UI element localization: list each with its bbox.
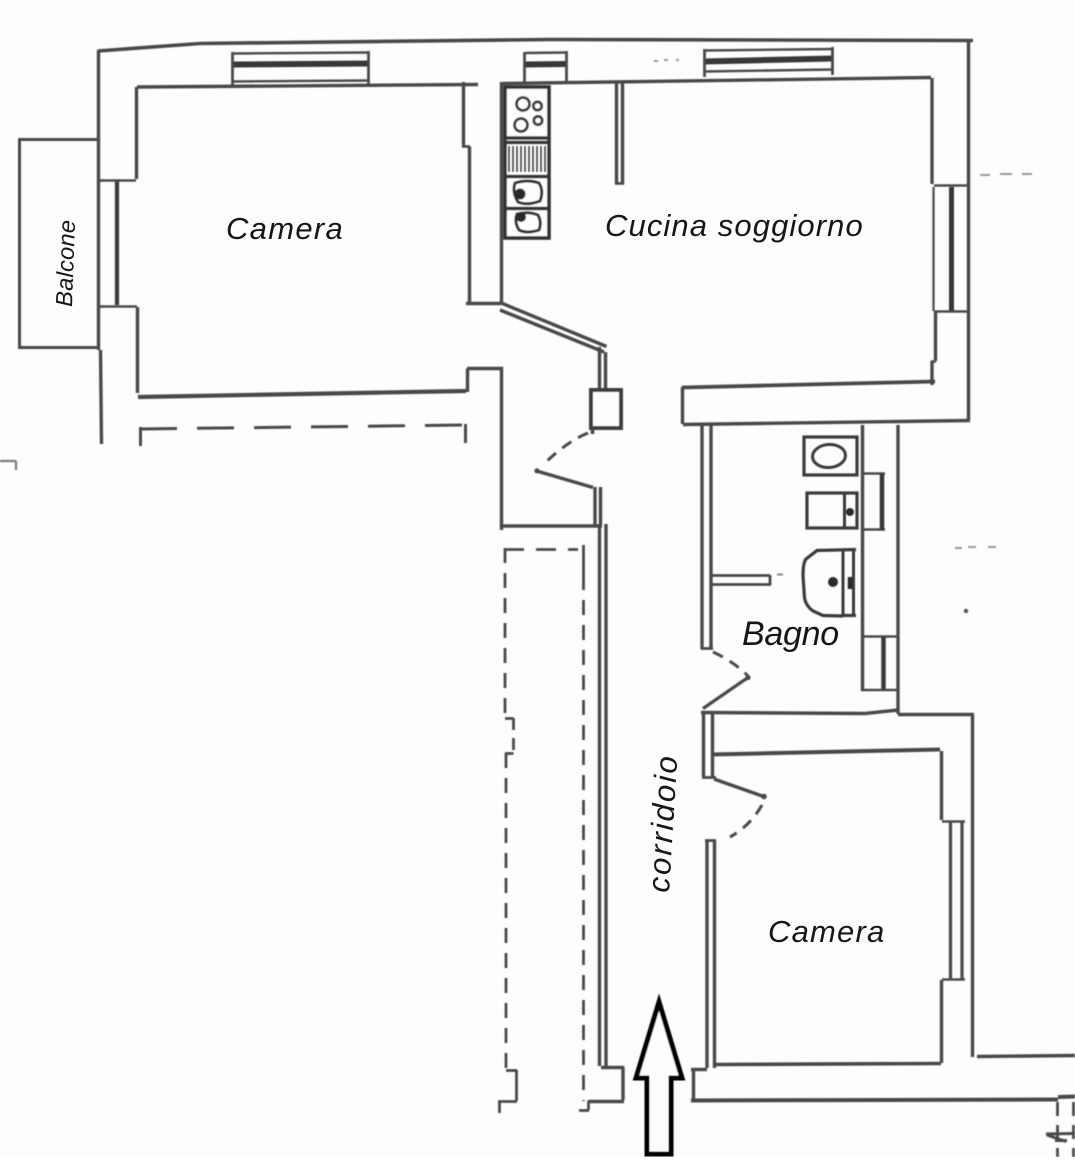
svg-text:corridoio: corridoio [641,753,684,894]
svg-text:Bagno: Bagno [742,615,839,653]
svg-text:Cucina soggiorno: Cucina soggiorno [605,208,864,243]
svg-text:Camera: Camera [226,211,344,246]
svg-text:Camera: Camera [768,914,885,949]
svg-text:Balcone: Balcone [51,219,80,307]
